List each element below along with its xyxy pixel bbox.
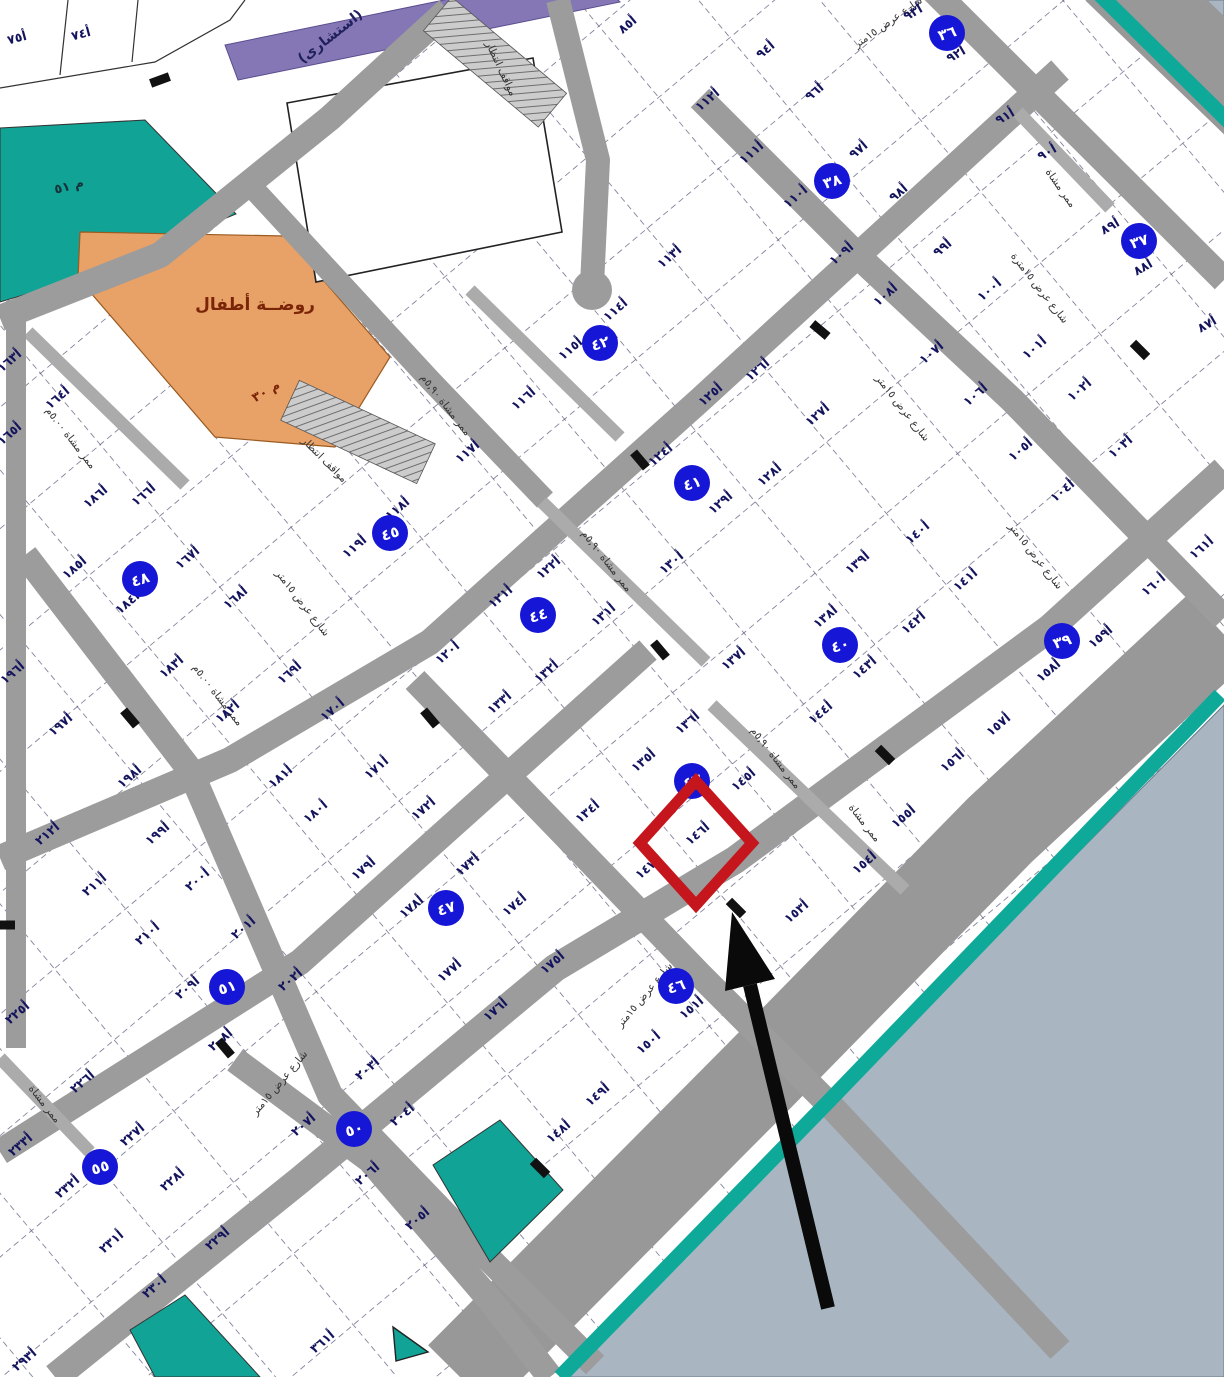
screenshot-root: شارع عرض ١٥مترشارع عرض ١٥مترشارع عرض ١٥م… <box>0 0 1224 1377</box>
plat-map-canvas: شارع عرض ١٥مترشارع عرض ١٥مترشارع عرض ١٥م… <box>0 0 1224 1377</box>
block-badge: ٣٨ <box>814 163 850 199</box>
block-badge: ٥١ <box>209 969 245 1005</box>
block-badge: ٣٩ <box>1044 623 1080 659</box>
block-badge: ٤٥ <box>372 515 408 551</box>
block-badge: ٣٦ <box>929 15 965 51</box>
block-badge: ٤١ <box>674 465 710 501</box>
block-badge: ٤٨ <box>122 561 158 597</box>
cul-de-sac <box>572 270 612 310</box>
block-badge: ٥٠ <box>336 1111 372 1147</box>
block-badge: ٤٧ <box>428 890 464 926</box>
block-badge: ٤٠ <box>822 627 858 663</box>
block-badge: ٤٦ <box>658 968 694 1004</box>
road-crossing-mark <box>0 921 15 930</box>
block-badge: ٤٤ <box>520 597 556 633</box>
block-badge: ٥٥ <box>82 1149 118 1185</box>
kindergarten-label: روضــة أطفال <box>195 293 315 315</box>
block-badge: ٤٢ <box>582 325 618 361</box>
block-badge: ٣٧ <box>1121 223 1157 259</box>
